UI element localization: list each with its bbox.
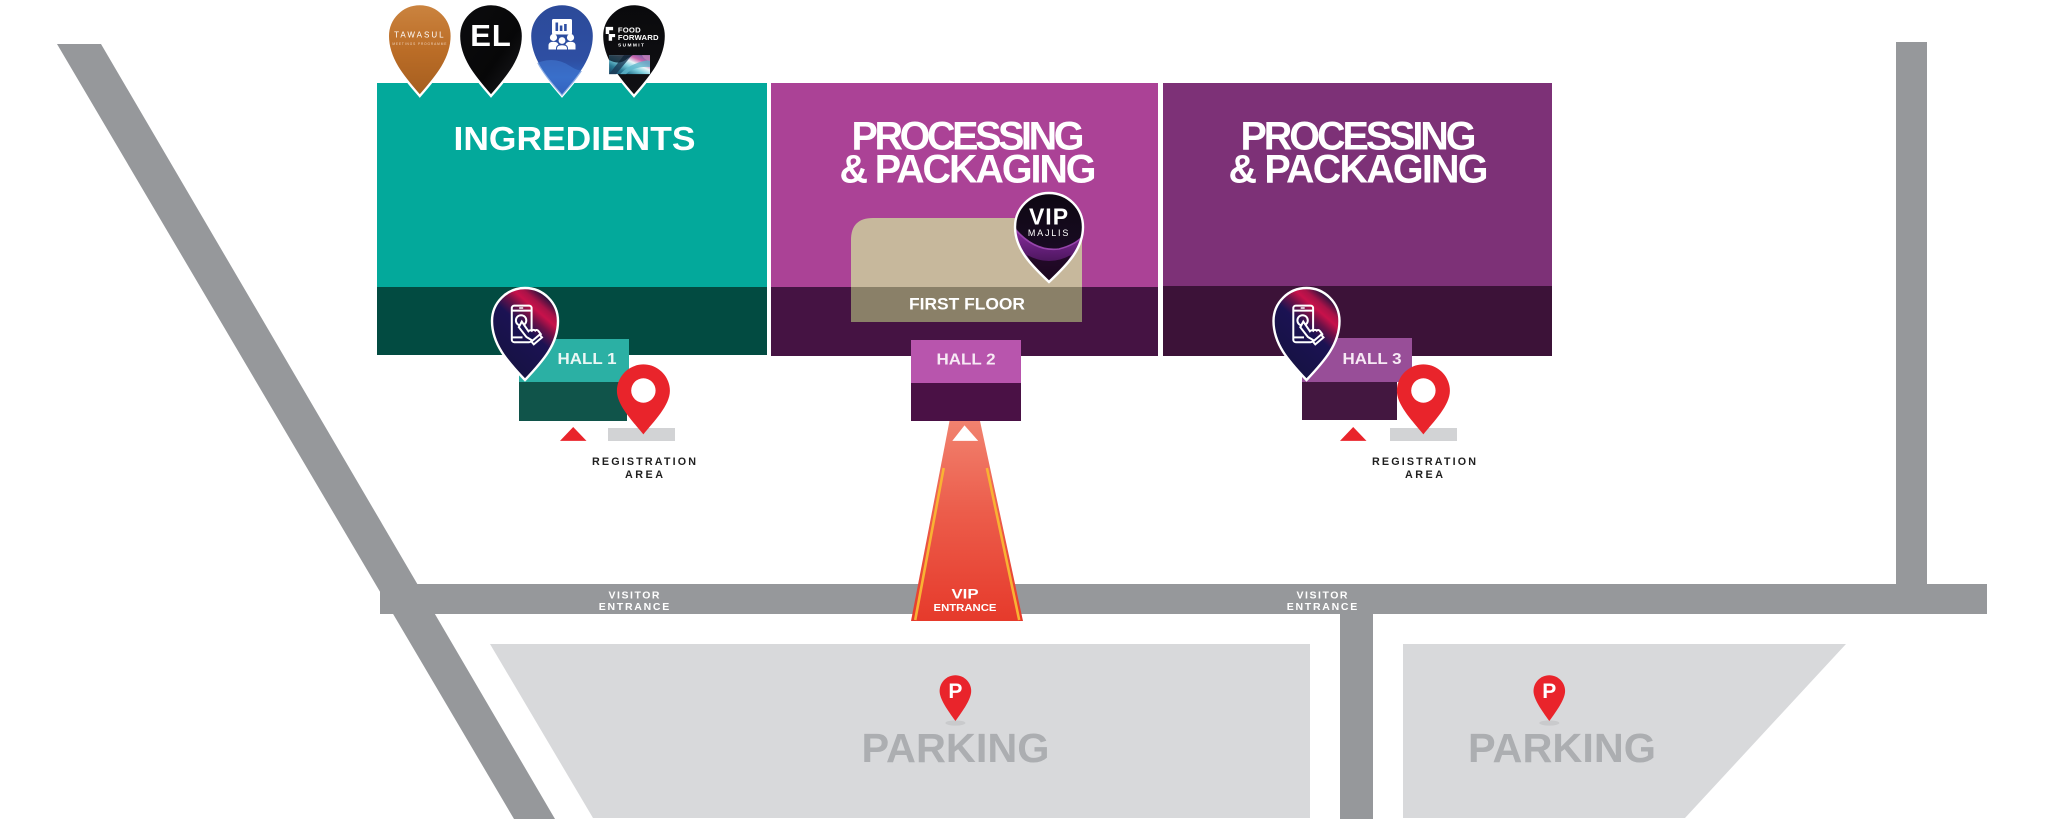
svg-text:SUMMIT: SUMMIT [618,43,645,49]
svg-text:HALL 1: HALL 1 [558,351,617,368]
svg-text:HALL 2: HALL 2 [937,351,996,368]
svg-text:REGISTRATION: REGISTRATION [1372,456,1476,468]
svg-text:& PACKAGING: & PACKAGING [840,147,1097,191]
svg-text:FORWARD: FORWARD [618,33,659,42]
svg-text:VISITOR: VISITOR [609,590,660,602]
svg-text:EL: EL [470,18,512,53]
svg-text:PARKING: PARKING [1468,725,1656,771]
svg-text:P: P [1542,680,1556,703]
svg-text:ENTRANCE: ENTRANCE [1287,601,1358,613]
svg-text:VIP: VIP [1029,204,1069,230]
svg-text:P: P [948,680,962,703]
svg-text:MAJLIS: MAJLIS [1028,228,1070,238]
svg-text:INGREDIENTS: INGREDIENTS [454,120,696,157]
svg-text:& PACKAGING: & PACKAGING [1229,147,1489,191]
svg-text:MEETINGS PROGRAMME: MEETINGS PROGRAMME [392,42,447,46]
svg-text:HALL 3: HALL 3 [1343,351,1402,368]
svg-text:PARKING: PARKING [862,725,1050,771]
svg-text:VIP: VIP [952,587,979,602]
svg-text:VISITOR: VISITOR [1297,590,1348,602]
svg-text:REGISTRATION: REGISTRATION [592,456,696,468]
svg-text:ENTRANCE: ENTRANCE [934,603,997,614]
svg-text:FIRST FLOOR: FIRST FLOOR [909,295,1025,314]
svg-text:ENTRANCE: ENTRANCE [599,601,670,613]
svg-text:TAWASUL: TAWASUL [394,31,445,40]
